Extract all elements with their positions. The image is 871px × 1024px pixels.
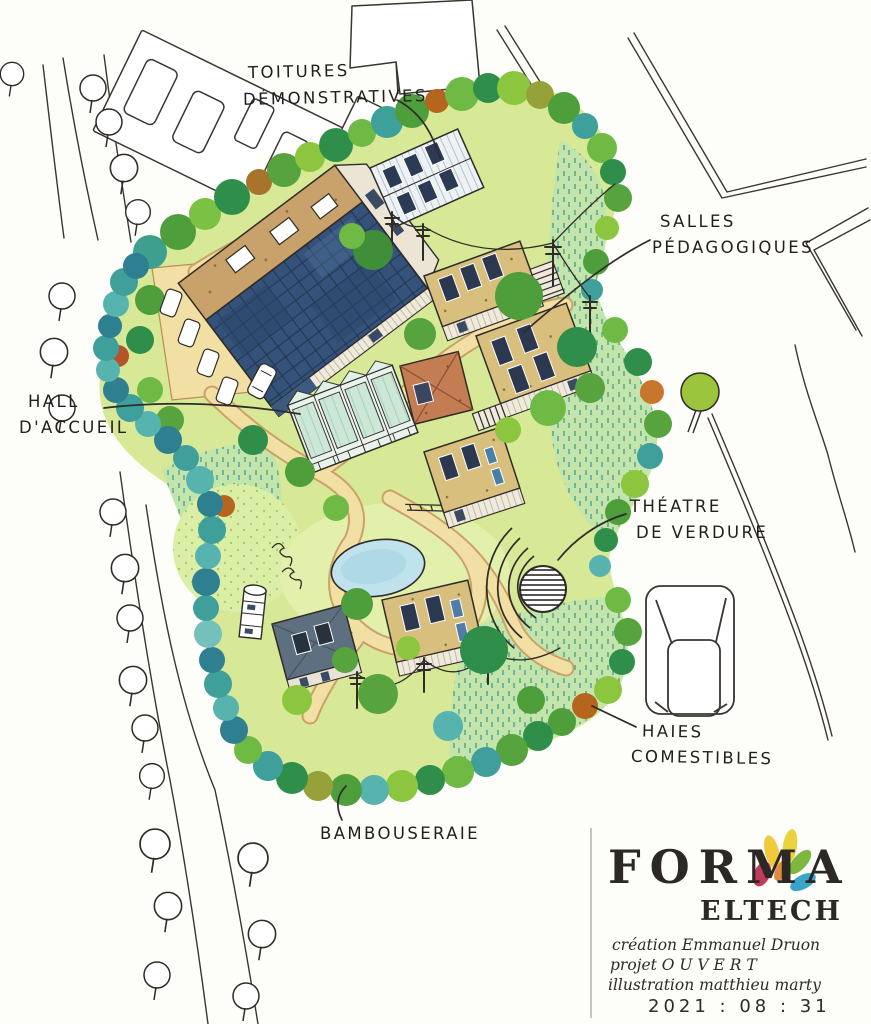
label-salles-line1: SALLES (660, 212, 736, 231)
credit-projet: projet O U V E R T (610, 956, 757, 974)
roundabout-footprint (646, 586, 734, 716)
label-bambouseraie: BAMBOUSERAIE (320, 824, 480, 843)
label-haies-line1: HAIES (642, 721, 704, 741)
label-salles-line2: PÉDAGOGIQUES (652, 238, 814, 257)
label-toitures-line2: DÉMONSTRATIVES (243, 86, 428, 109)
credit-creation: création Emmanuel Druon (612, 936, 820, 954)
label-theatre-line2: DE VERDURE (636, 523, 768, 542)
label-hall-line1: HALL (28, 392, 80, 411)
compost-tower (239, 584, 266, 639)
credit-date: 2021 : 08 : 31 (648, 996, 831, 1017)
label-haies-line2: COMESTIBLES (631, 747, 774, 768)
roadside-tree-colored (681, 373, 719, 433)
stippled-meadow (173, 484, 301, 612)
logo-brand-sub: ELTECH (700, 896, 843, 927)
logo-brand: FORMA (608, 840, 851, 894)
illustrated-site-plan: TOITURES DÉMONSTRATIVES SALLES PÉDAGOGIQ… (0, 0, 871, 1024)
credit-illustration: illustration matthieu marty (608, 976, 821, 994)
label-hall-line2: D'ACCUEIL (19, 418, 128, 437)
label-theatre-line1: THÉATRE (630, 497, 722, 516)
label-toitures-line1: TOITURES (248, 61, 350, 82)
